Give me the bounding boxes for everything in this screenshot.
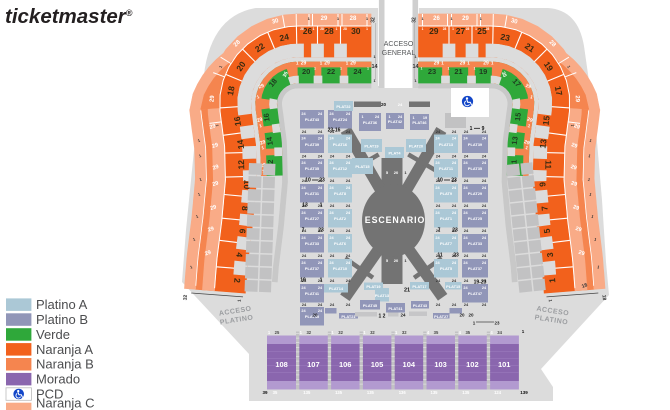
svg-text:21: 21: [404, 288, 410, 294]
svg-text:PLAT9: PLAT9: [440, 191, 453, 196]
svg-text:16: 16: [262, 113, 272, 122]
svg-text:28: 28: [343, 27, 347, 31]
svg-text:13: 13: [510, 136, 520, 145]
svg-text:29: 29: [462, 16, 469, 22]
svg-text:24: 24: [482, 154, 487, 159]
svg-text:24: 24: [464, 203, 469, 208]
svg-text:24: 24: [330, 302, 335, 307]
svg-text:107: 107: [307, 360, 320, 369]
svg-text:139: 139: [520, 390, 528, 395]
svg-text:1: 1: [475, 27, 477, 31]
svg-text:24: 24: [436, 278, 441, 283]
svg-text:102: 102: [466, 360, 479, 369]
svg-text:PLAT13: PLAT13: [439, 142, 454, 147]
svg-text:20: 20: [302, 67, 310, 76]
svg-text:PLAT37: PLAT37: [305, 266, 319, 271]
svg-text:24: 24: [398, 102, 403, 107]
svg-text:1: 1: [320, 203, 323, 209]
svg-text:34: 34: [497, 330, 502, 335]
svg-text:ticketmaster®: ticketmaster®: [5, 5, 133, 28]
svg-text:24: 24: [436, 302, 441, 307]
svg-text:10: 10: [305, 178, 311, 184]
svg-text:23: 23: [451, 178, 457, 184]
svg-text:Platino A: Platino A: [36, 297, 88, 312]
svg-text:29: 29: [434, 61, 440, 67]
svg-text:13: 13: [302, 203, 308, 209]
svg-text:24: 24: [330, 278, 335, 283]
svg-text:PLAT19: PLAT19: [364, 144, 379, 149]
svg-text:24: 24: [346, 302, 351, 307]
svg-text:11: 11: [437, 253, 443, 259]
svg-text:35: 35: [434, 330, 439, 335]
svg-text:PLAT37: PLAT37: [468, 266, 482, 271]
svg-text:29: 29: [350, 61, 356, 67]
svg-text:135: 135: [335, 390, 343, 395]
svg-text:32: 32: [306, 330, 311, 335]
svg-text:1: 1: [340, 67, 342, 71]
svg-text:PLAT41: PLAT41: [305, 291, 320, 296]
svg-text:108: 108: [275, 360, 288, 369]
svg-text:12: 12: [236, 160, 246, 170]
svg-text:24: 24: [318, 302, 323, 307]
svg-text:135: 135: [462, 390, 470, 395]
svg-text:7: 7: [438, 228, 441, 234]
svg-text:24: 24: [302, 154, 307, 159]
svg-text:23: 23: [319, 178, 325, 184]
svg-text:PLAT20: PLAT20: [409, 144, 423, 149]
svg-text:PLAT29: PLAT29: [468, 191, 483, 196]
svg-text:28: 28: [486, 27, 490, 31]
svg-text:24: 24: [482, 228, 487, 233]
svg-text:PLAT24: PLAT24: [333, 117, 348, 122]
svg-text:29: 29: [574, 95, 581, 103]
svg-text:106: 106: [339, 360, 352, 369]
svg-text:25: 25: [275, 330, 280, 335]
svg-text:24: 24: [464, 154, 469, 159]
svg-text:PLAT1: PLAT1: [440, 216, 453, 221]
svg-text:124: 124: [494, 390, 502, 395]
svg-text:28: 28: [324, 26, 334, 36]
svg-text:24: 24: [452, 154, 457, 159]
svg-text:1: 1: [367, 67, 369, 71]
svg-text:PLAT7: PLAT7: [440, 241, 452, 246]
svg-text:20: 20: [459, 313, 465, 318]
svg-text:1: 1: [313, 27, 315, 31]
svg-text:Naranja B: Naranja B: [36, 357, 94, 372]
svg-text:29: 29: [209, 95, 216, 103]
svg-text:PLAT27: PLAT27: [434, 314, 448, 319]
svg-text:23: 23: [453, 253, 459, 259]
svg-text:24: 24: [346, 129, 351, 134]
svg-text:24: 24: [346, 228, 351, 233]
svg-text:26: 26: [433, 16, 440, 22]
svg-text:22: 22: [327, 67, 335, 76]
svg-text:24: 24: [452, 129, 457, 134]
svg-text:PLAT14: PLAT14: [329, 286, 344, 291]
svg-text:18: 18: [600, 295, 606, 301]
svg-text:10: 10: [437, 178, 443, 184]
svg-text:32: 32: [402, 330, 407, 335]
svg-text:1: 1: [366, 27, 368, 31]
svg-text:PLAT31: PLAT31: [305, 191, 320, 196]
svg-text:PLAT11: PLAT11: [439, 166, 454, 171]
svg-text:PLAT46: PLAT46: [412, 120, 427, 125]
svg-text:28: 28: [443, 27, 447, 31]
svg-text:PLAT41: PLAT41: [388, 306, 403, 311]
svg-text:PLAT25: PLAT25: [468, 216, 483, 221]
svg-text:PLAT15: PLAT15: [355, 164, 370, 169]
svg-text:1: 1: [412, 116, 414, 120]
svg-text:20: 20: [381, 102, 387, 107]
svg-text:19: 19: [479, 67, 487, 76]
svg-text:24: 24: [330, 178, 335, 183]
svg-text:20: 20: [312, 313, 318, 318]
svg-text:PLAT6: PLAT6: [334, 241, 347, 246]
svg-text:PLAT13: PLAT13: [375, 293, 390, 298]
svg-text:136: 136: [399, 390, 407, 395]
svg-text:14: 14: [235, 139, 246, 150]
svg-text:24: 24: [346, 178, 351, 183]
svg-text:19-23: 19-23: [474, 280, 487, 286]
svg-text:29: 29: [460, 61, 466, 67]
svg-text:32: 32: [370, 330, 375, 335]
svg-text:Naranja A: Naranja A: [36, 342, 93, 357]
svg-text:24: 24: [452, 203, 457, 208]
svg-text:PLAT45: PLAT45: [363, 303, 378, 308]
svg-text:1: 1: [361, 115, 363, 119]
svg-text:24: 24: [482, 203, 487, 208]
svg-text:7: 7: [302, 228, 305, 234]
svg-text:103: 103: [434, 360, 447, 369]
svg-text:PLAT36: PLAT36: [363, 120, 378, 125]
svg-text:29: 29: [429, 26, 439, 36]
svg-text:135: 135: [303, 390, 311, 395]
svg-text:PLAT35: PLAT35: [468, 166, 483, 171]
svg-text:32: 32: [183, 294, 189, 300]
svg-text:PLAT16: PLAT16: [333, 142, 348, 147]
svg-text:Platino B: Platino B: [36, 312, 88, 327]
svg-text:105: 105: [371, 360, 384, 369]
svg-text:21: 21: [454, 67, 462, 76]
svg-text:GENERAL: GENERAL: [382, 50, 416, 57]
svg-text:27: 27: [456, 26, 466, 36]
svg-text:PLAT43: PLAT43: [305, 117, 320, 122]
svg-text:135: 135: [367, 390, 375, 395]
svg-text:28: 28: [320, 27, 324, 31]
svg-text:24: 24: [464, 129, 469, 134]
svg-text:24: 24: [464, 178, 469, 183]
svg-text:24: 24: [302, 253, 307, 258]
svg-text:24: 24: [330, 203, 335, 208]
svg-text:1: 1: [452, 27, 454, 31]
svg-text:24: 24: [436, 129, 441, 134]
svg-text:24: 24: [464, 228, 469, 233]
svg-text:Naranja C: Naranja C: [36, 396, 95, 410]
svg-text:13: 13: [537, 138, 548, 149]
svg-text:1 2: 1 2: [379, 314, 386, 320]
svg-text:15: 15: [513, 112, 523, 121]
svg-text:1: 1: [421, 67, 423, 71]
svg-text:24: 24: [482, 178, 487, 183]
svg-text:20: 20: [468, 313, 474, 318]
svg-text:24: 24: [330, 228, 335, 233]
svg-text:ESCENARIO: ESCENARIO: [365, 215, 425, 225]
svg-text:19: 19: [300, 278, 306, 284]
svg-text:24: 24: [482, 302, 487, 307]
svg-text:23: 23: [428, 67, 436, 76]
svg-text:28: 28: [300, 27, 304, 31]
svg-text:PLAT21: PLAT21: [341, 314, 356, 319]
svg-text:PLAT33: PLAT33: [468, 241, 483, 246]
svg-text:15: 15: [541, 115, 552, 126]
svg-text:24: 24: [346, 253, 351, 258]
svg-text:30: 30: [351, 26, 361, 36]
svg-text:32: 32: [412, 17, 418, 23]
svg-text:1: 1: [422, 27, 424, 31]
svg-text:1: 1: [474, 67, 476, 71]
svg-text:23-16: 23-16: [328, 128, 341, 134]
svg-text:24: 24: [436, 154, 441, 159]
svg-text:PLAT12: PLAT12: [333, 166, 348, 171]
svg-text:1: 1: [470, 126, 473, 132]
svg-text:35: 35: [465, 330, 470, 335]
svg-text:24: 24: [346, 278, 351, 283]
svg-text:PLAT43: PLAT43: [413, 303, 428, 308]
svg-text:PLAT15: PLAT15: [446, 284, 461, 289]
svg-text:Verde: Verde: [36, 327, 70, 342]
svg-text:19: 19: [423, 116, 427, 120]
svg-text:PLAT8: PLAT8: [334, 191, 347, 196]
svg-text:29: 29: [321, 16, 328, 22]
svg-text:24: 24: [302, 129, 307, 134]
svg-text:PLAT33: PLAT33: [305, 241, 320, 246]
svg-text:PLAT47: PLAT47: [468, 291, 482, 296]
svg-text:39: 39: [262, 390, 268, 395]
svg-text:24: 24: [464, 302, 469, 307]
svg-text:PLAT4: PLAT4: [388, 151, 401, 156]
svg-text:24: 24: [318, 253, 323, 258]
svg-text:24: 24: [464, 253, 469, 258]
svg-text:PLAT2: PLAT2: [334, 216, 347, 221]
svg-text:24: 24: [464, 278, 469, 283]
svg-text:24: 24: [436, 203, 441, 208]
svg-text:16: 16: [232, 116, 243, 127]
svg-text:24: 24: [353, 67, 362, 76]
svg-text:24: 24: [330, 253, 335, 258]
svg-text:23: 23: [318, 228, 324, 234]
svg-text:29: 29: [483, 61, 489, 67]
svg-text:24: 24: [302, 302, 307, 307]
svg-text:24: 24: [400, 313, 406, 318]
svg-text:135: 135: [431, 390, 439, 395]
svg-text:PLAT39: PLAT39: [305, 142, 320, 147]
svg-text:24: 24: [482, 253, 487, 258]
svg-text:23: 23: [494, 321, 500, 326]
svg-text:24: 24: [346, 154, 351, 159]
svg-text:1: 1: [314, 67, 316, 71]
svg-text:PLAT27: PLAT27: [305, 216, 319, 221]
svg-text:PLAT22: PLAT22: [336, 104, 351, 109]
svg-text:1: 1: [388, 115, 390, 119]
svg-text:PLAT42: PLAT42: [388, 119, 403, 124]
svg-text:9: 9: [482, 126, 485, 132]
svg-text:1: 1: [320, 278, 323, 284]
svg-text:29: 29: [301, 61, 307, 67]
svg-text:PLAT5: PLAT5: [440, 266, 453, 271]
svg-text:1: 1: [336, 27, 338, 31]
svg-text:23: 23: [452, 228, 458, 234]
svg-text:1: 1: [448, 67, 450, 71]
svg-text:20: 20: [394, 258, 399, 263]
svg-text:24: 24: [330, 154, 335, 159]
svg-text:14: 14: [371, 64, 378, 70]
svg-text:14: 14: [412, 64, 419, 70]
svg-text:PLAT17: PLAT17: [412, 284, 426, 289]
svg-text:24: 24: [346, 203, 351, 208]
svg-text:32: 32: [371, 17, 377, 23]
svg-text:11: 11: [543, 160, 553, 169]
svg-text:PLAT35: PLAT35: [305, 166, 320, 171]
svg-text:ACCESO: ACCESO: [384, 41, 414, 48]
svg-text:29: 29: [324, 61, 330, 67]
svg-text:PLAT10: PLAT10: [333, 266, 347, 271]
svg-text:35: 35: [273, 390, 278, 395]
svg-text:24: 24: [318, 129, 323, 134]
svg-text:104: 104: [403, 360, 416, 369]
svg-text:PLAT39: PLAT39: [468, 142, 483, 147]
svg-text:Morado: Morado: [36, 372, 80, 387]
svg-text:32: 32: [338, 330, 343, 335]
svg-text:28: 28: [466, 27, 470, 31]
svg-text:101: 101: [498, 360, 511, 369]
svg-text:28: 28: [350, 16, 357, 22]
svg-text:20: 20: [394, 170, 399, 175]
svg-text:24: 24: [452, 302, 457, 307]
svg-text:24: 24: [318, 154, 323, 159]
svg-text:26: 26: [303, 26, 313, 36]
